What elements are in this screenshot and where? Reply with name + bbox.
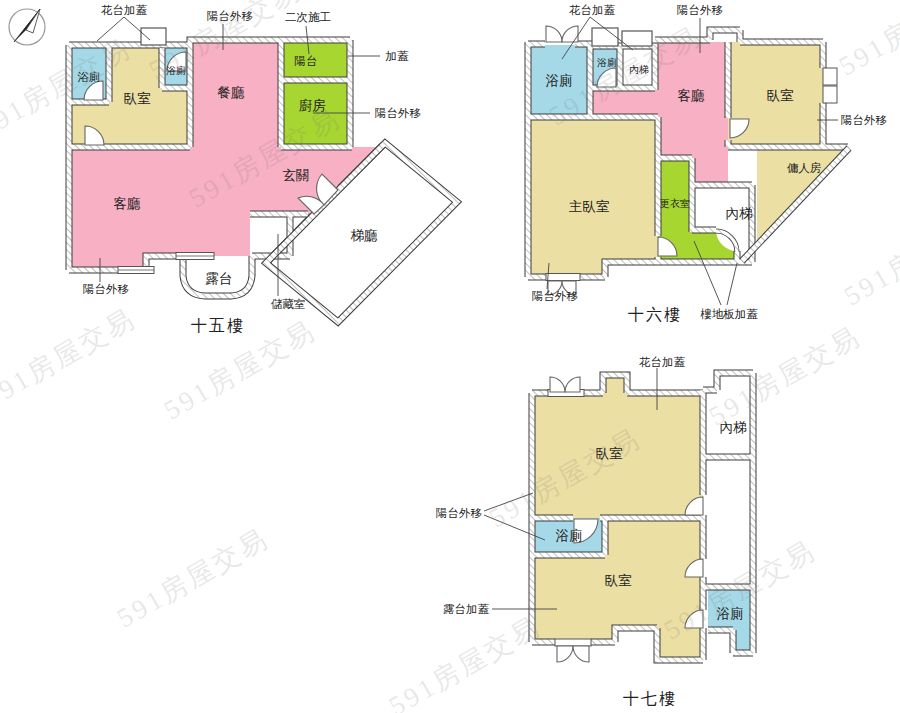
room-label-stairhall: 梯廳 [351,228,379,243]
room-label-bedroom: 臥室 [124,91,152,106]
room-label-bedroom-top-17f: 臥室 [596,446,624,461]
label-balcony-out-right: 陽台外移 [375,107,421,119]
room-label-foyer: 玄關 [283,168,310,183]
flower-box-15f [141,28,166,45]
floorplan-drawing: 花台加蓋 陽台外移 二次施工 加蓋 陽台外移 陽台外移 儲藏室 浴廁 臥室 浴廁… [0,0,900,713]
label-flower-cover-16f: 花台加蓋 [569,4,616,16]
room-label-bath2-17f: 浴廁 [717,606,744,621]
room-15f-kitchen [281,80,350,147]
label-floor-addition-16f: 樓地板加蓋 [700,308,758,320]
label-second-construction: 二次施工 [285,11,331,23]
room-label-closet-16f: 更衣室 [660,198,690,209]
room-label-bedroom-bottom-17f: 臥室 [605,573,633,588]
floor-title-17f: 十七樓 [623,690,677,707]
label-terrace-addition-17f: 露台加蓋 [443,603,490,615]
label-balcony-out-top-16f: 陽台外移 [677,4,723,16]
room-label-living-16f: 客廳 [678,88,706,103]
room-label-stairs-top-16f: 內梯 [629,64,649,75]
floor-title-16f: 十六樓 [628,306,682,323]
compass-icon [9,9,45,45]
label-addition: 加蓋 [386,50,410,62]
room-label-master-16f: 主臥室 [569,199,610,214]
room-label-stairs-bottom-16f: 內梯 [726,206,754,221]
room-label-living: 客廳 [114,196,142,211]
label-balcony-out-top: 陽台外移 [207,10,253,22]
room-17f-stairs [703,373,753,457]
floor-plan-17f: 花台加蓋 陽台外移 露台加蓋 臥室 內梯 浴廁 臥室 浴廁 十七樓 [436,356,753,707]
floorplan-sheet: 花台加蓋 陽台外移 二次施工 加蓋 陽台外移 陽台外移 儲藏室 浴廁 臥室 浴廁… [0,0,900,713]
room-16f-master-bedroom [528,117,658,277]
room-label-stairs-17f: 內梯 [720,420,748,435]
label-flower-cover-17f: 花台加蓋 [639,356,686,368]
room-label-bath1-17f: 浴廁 [556,528,583,543]
label-storage: 儲藏室 [271,298,306,310]
label-balcony-out-bottom-16f: 陽台外移 [532,290,578,302]
room-label-bath1: 浴廁 [78,71,101,83]
room-label-bath2: 浴廁 [166,65,186,76]
window-symbol [823,68,837,103]
room-label-terrace: 露台 [206,271,233,286]
floor-plan-16f: 花台加蓋 陽台外移 陽台外移 陽台外移 樓地板加蓋 浴廁 浴廁 內梯 客廳 臥室… [528,4,887,323]
room-label-bath1-16f: 浴廁 [546,73,573,88]
floor-plan-15f: 花台加蓋 陽台外移 二次施工 加蓋 陽台外移 陽台外移 儲藏室 浴廁 臥室 浴廁… [69,4,457,334]
room-label-bath2-16f: 浴廁 [597,57,617,68]
room-label-kitchen: 廚房 [299,98,327,113]
flower-box-16f-right [622,31,652,46]
label-flower-cover: 花台加蓋 [101,4,148,16]
flower-box-16f-left [592,28,618,46]
floor-title-15f: 十五樓 [191,317,245,334]
label-balcony-out-right-16f: 陽台外移 [841,114,887,126]
room-label-maid-16f: 傭人房 [787,162,822,174]
label-balcony-out-bottom: 陽台外移 [83,283,129,295]
room-label-bedroom-16f: 臥室 [767,88,795,103]
label-balcony-out-17f: 陽台外移 [436,507,482,519]
room-label-balcony: 陽台 [295,55,318,67]
room-label-dining: 餐廳 [218,85,246,100]
